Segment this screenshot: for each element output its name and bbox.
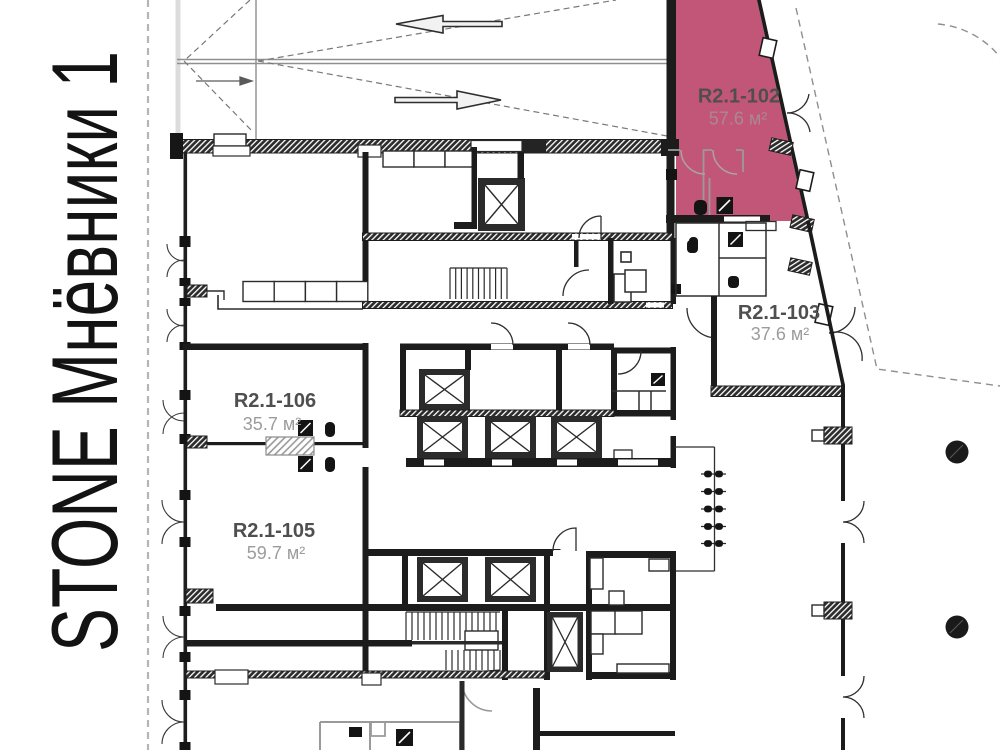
svg-text:59.7 м²: 59.7 м² xyxy=(247,543,305,563)
svg-text:STONE Мнёвники 1: STONE Мнёвники 1 xyxy=(32,51,137,652)
svg-text:37.6 м²: 37.6 м² xyxy=(751,324,809,344)
svg-text:R2.1-102: R2.1-102 xyxy=(698,86,780,108)
svg-text:R2.1-105: R2.1-105 xyxy=(233,520,315,542)
svg-text:35.7 м²: 35.7 м² xyxy=(243,414,301,434)
svg-text:57.6 м²: 57.6 м² xyxy=(709,109,767,129)
svg-text:R2.1-103: R2.1-103 xyxy=(738,302,820,324)
svg-text:R2.1-106: R2.1-106 xyxy=(234,390,316,412)
